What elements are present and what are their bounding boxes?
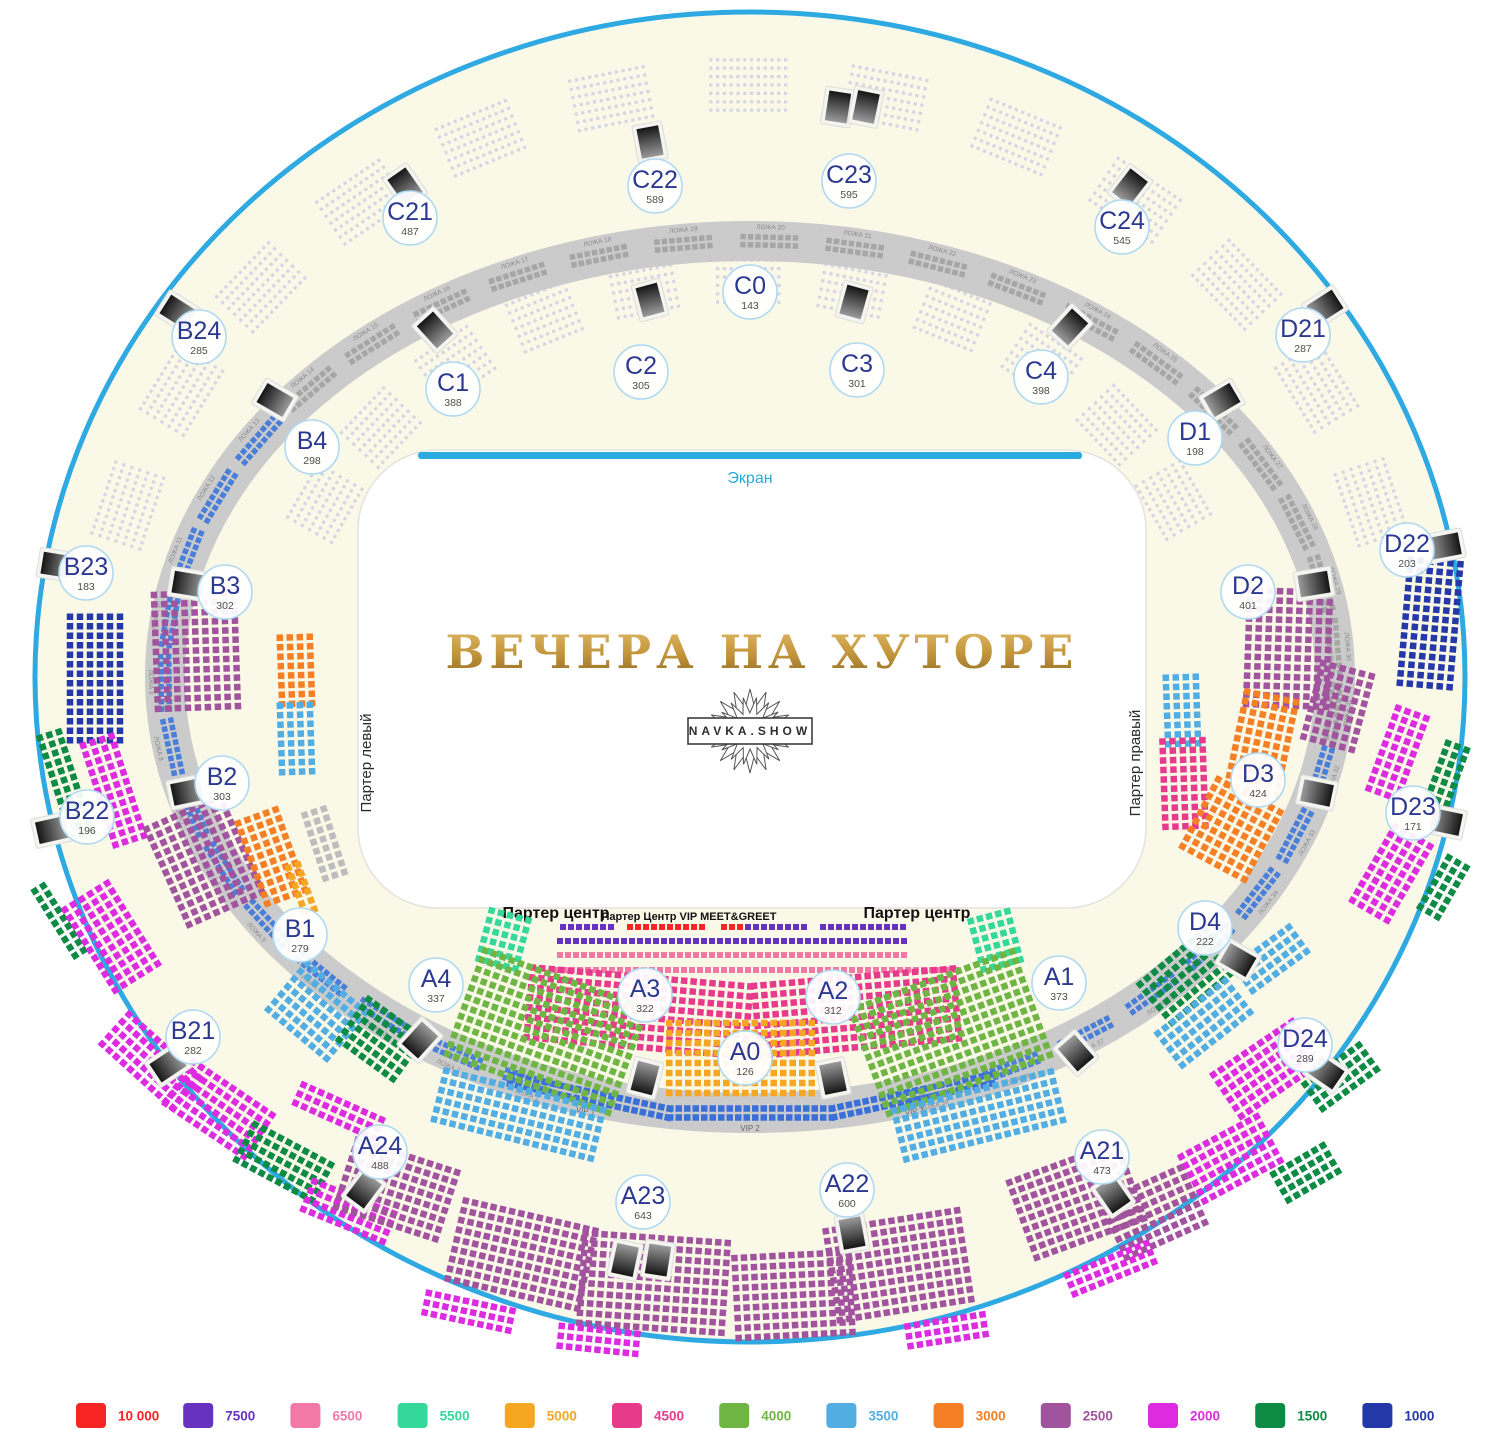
section-A23[interactable]: A23643 <box>616 1175 670 1229</box>
svg-text:D3: D3 <box>1242 760 1274 788</box>
svg-text:287: 287 <box>1294 343 1312 355</box>
legend-swatch <box>1148 1403 1178 1428</box>
svg-text:595: 595 <box>840 189 858 201</box>
legend-item-4000: 4000 <box>719 1403 791 1428</box>
legend-item-2000: 2000 <box>1148 1403 1220 1428</box>
svg-text:B23: B23 <box>64 553 108 581</box>
legend-item-1000: 1000 <box>1362 1403 1434 1428</box>
gate-icon <box>834 1212 870 1255</box>
screen-label: Экран <box>727 470 772 487</box>
section-D23[interactable]: D23171 <box>1386 786 1440 840</box>
svg-text:B1: B1 <box>285 915 316 943</box>
section-B23[interactable]: B23183 <box>59 546 113 600</box>
legend-item-10000: 10 000 <box>76 1403 159 1428</box>
seat-block <box>1271 1142 1344 1201</box>
svg-text:183: 183 <box>77 581 95 593</box>
legend-item-2500: 2500 <box>1041 1403 1113 1428</box>
section-C21[interactable]: C21487 <box>383 191 437 245</box>
section-B3[interactable]: B3302 <box>198 565 252 619</box>
arena-seating-map: ЛОЖА 1ЛОЖА 2ЛОЖА 3ЛОЖА 4ЛОЖА 5ЛОЖА 6ЛОЖА… <box>0 0 1500 1429</box>
gate-icon <box>640 1239 676 1281</box>
svg-text:398: 398 <box>1032 385 1050 397</box>
legend-item-4500: 4500 <box>612 1403 684 1428</box>
logo-text: NAVKA.SHOW <box>689 724 811 738</box>
svg-text:222: 222 <box>1196 936 1214 948</box>
svg-text:D23: D23 <box>1390 793 1436 821</box>
svg-text:B3: B3 <box>210 572 241 600</box>
svg-text:312: 312 <box>824 1005 842 1017</box>
section-A22[interactable]: A22600 <box>820 1163 874 1217</box>
svg-text:A3: A3 <box>630 975 661 1003</box>
svg-text:B22: B22 <box>65 797 109 825</box>
svg-text:196: 196 <box>78 825 96 837</box>
legend-item-3500: 3500 <box>826 1403 898 1428</box>
legend-price-label: 2500 <box>1083 1409 1113 1424</box>
section-B22[interactable]: B22196 <box>60 790 114 844</box>
svg-text:424: 424 <box>1249 788 1267 800</box>
section-B24[interactable]: B24285 <box>172 310 226 364</box>
section-A24[interactable]: A24488 <box>353 1125 407 1179</box>
price-legend: 10 0007500650055005000450040003500300025… <box>76 1403 1434 1428</box>
svg-text:B2: B2 <box>207 763 238 791</box>
svg-text:A23: A23 <box>621 1182 665 1210</box>
svg-text:A24: A24 <box>358 1132 403 1160</box>
section-B4[interactable]: B4298 <box>285 420 339 474</box>
svg-text:285: 285 <box>190 345 208 357</box>
svg-text:ЛОЖА 20: ЛОЖА 20 <box>756 224 785 232</box>
svg-text:388: 388 <box>444 397 462 409</box>
section-D22[interactable]: D22203 <box>1380 523 1434 577</box>
show-title: ВЕЧЕРА НА ХУТОРЕ <box>446 625 1079 679</box>
svg-text:D4: D4 <box>1189 908 1221 936</box>
svg-text:322: 322 <box>636 1003 654 1015</box>
svg-text:D22: D22 <box>1384 530 1430 558</box>
legend-swatch <box>76 1403 106 1428</box>
arena-svg: ЛОЖА 1ЛОЖА 2ЛОЖА 3ЛОЖА 4ЛОЖА 5ЛОЖА 6ЛОЖА… <box>0 0 1500 1429</box>
section-C2[interactable]: C2305 <box>614 345 668 399</box>
svg-text:C21: C21 <box>387 198 433 226</box>
legend-swatch <box>290 1403 320 1428</box>
svg-text:A1: A1 <box>1044 963 1075 991</box>
section-C3[interactable]: C3301 <box>830 343 884 397</box>
legend-price-label: 4500 <box>654 1409 684 1424</box>
svg-text:279: 279 <box>291 943 309 955</box>
gate-icon <box>1293 566 1335 602</box>
legend-price-label: 5000 <box>547 1409 577 1424</box>
legend-item-3000: 3000 <box>934 1403 1006 1428</box>
svg-text:337: 337 <box>427 993 445 1005</box>
legend-price-label: 4000 <box>761 1409 791 1424</box>
svg-text:487: 487 <box>401 226 419 238</box>
section-B1[interactable]: B1279 <box>273 908 327 962</box>
svg-text:A4: A4 <box>421 965 452 993</box>
svg-text:C24: C24 <box>1099 207 1145 235</box>
floor-center-right-label: Партер центр <box>864 905 971 922</box>
legend-price-label: 3500 <box>868 1409 898 1424</box>
ice-field <box>358 450 1146 908</box>
legend-swatch <box>934 1403 964 1428</box>
section-B21[interactable]: B21282 <box>166 1010 220 1064</box>
legend-price-label: 1500 <box>1297 1409 1327 1424</box>
section-D1[interactable]: D1198 <box>1168 411 1222 465</box>
svg-text:301: 301 <box>848 378 866 390</box>
legend-swatch <box>398 1403 428 1428</box>
svg-text:126: 126 <box>736 1066 754 1078</box>
svg-text:282: 282 <box>184 1045 202 1057</box>
screen-bar <box>418 452 1082 459</box>
legend-item-1500: 1500 <box>1255 1403 1327 1428</box>
svg-text:D1: D1 <box>1179 418 1211 446</box>
legend-price-label: 6500 <box>332 1409 362 1424</box>
svg-text:B4: B4 <box>297 427 328 455</box>
svg-text:600: 600 <box>838 1198 856 1210</box>
section-C1[interactable]: C1388 <box>426 362 480 416</box>
svg-text:A2: A2 <box>818 977 849 1005</box>
svg-text:D21: D21 <box>1280 315 1326 343</box>
legend-swatch <box>1041 1403 1071 1428</box>
section-D3[interactable]: D3424 <box>1231 753 1285 807</box>
svg-text:D24: D24 <box>1282 1025 1328 1053</box>
svg-text:545: 545 <box>1113 235 1131 247</box>
gate-icon <box>632 121 668 164</box>
section-B2[interactable]: B2303 <box>195 756 249 810</box>
legend-price-label: 10 000 <box>118 1409 159 1424</box>
section-A21[interactable]: A21473 <box>1075 1130 1129 1184</box>
svg-text:A0: A0 <box>730 1038 761 1066</box>
section-C23[interactable]: C23595 <box>822 154 876 208</box>
svg-text:401: 401 <box>1239 600 1257 612</box>
svg-text:VIP 2: VIP 2 <box>740 1124 760 1133</box>
legend-swatch <box>505 1403 535 1428</box>
svg-text:A22: A22 <box>825 1170 869 1198</box>
section-D21[interactable]: D21287 <box>1276 308 1330 362</box>
svg-text:373: 373 <box>1050 991 1068 1003</box>
legend-price-label: 5500 <box>440 1409 470 1424</box>
svg-text:C1: C1 <box>437 369 469 397</box>
svg-text:198: 198 <box>1186 446 1204 458</box>
floor-vip-label: Партер Центр VIP MEET&GREET <box>602 911 777 923</box>
svg-text:303: 303 <box>213 791 231 803</box>
svg-text:289: 289 <box>1296 1053 1314 1065</box>
svg-text:473: 473 <box>1093 1165 1111 1177</box>
section-C22[interactable]: C22589 <box>628 159 682 213</box>
legend-swatch <box>612 1403 642 1428</box>
legend-price-label: 2000 <box>1190 1409 1220 1424</box>
svg-text:643: 643 <box>634 1210 652 1222</box>
legend-swatch <box>826 1403 856 1428</box>
svg-text:D2: D2 <box>1232 572 1264 600</box>
section-C24[interactable]: C24545 <box>1095 200 1149 254</box>
section-A2[interactable]: A2312 <box>806 970 860 1024</box>
svg-text:C22: C22 <box>632 166 678 194</box>
section-C4[interactable]: C4398 <box>1014 350 1068 404</box>
legend-item-7500: 7500 <box>183 1403 255 1428</box>
section-A3[interactable]: A3322 <box>618 968 672 1022</box>
legend-item-5000: 5000 <box>505 1403 577 1428</box>
svg-text:A21: A21 <box>1080 1137 1124 1165</box>
svg-text:298: 298 <box>303 455 321 467</box>
legend-price-label: 3000 <box>976 1409 1006 1424</box>
svg-text:B24: B24 <box>177 317 222 345</box>
svg-text:C23: C23 <box>826 161 872 189</box>
svg-text:ЛОЖА 9: ЛОЖА 9 <box>147 670 154 695</box>
legend-item-6500: 6500 <box>290 1403 362 1428</box>
floor-right-label: Партер правый <box>1127 710 1144 817</box>
svg-text:171: 171 <box>1404 821 1422 833</box>
legend-price-label: 7500 <box>225 1409 255 1424</box>
legend-item-5500: 5500 <box>398 1403 470 1428</box>
section-A4[interactable]: A4337 <box>409 958 463 1012</box>
section-D24[interactable]: D24289 <box>1278 1018 1332 1072</box>
svg-text:203: 203 <box>1398 558 1416 570</box>
section-A1[interactable]: A1373 <box>1032 956 1086 1010</box>
legend-swatch <box>1255 1403 1285 1428</box>
svg-text:B21: B21 <box>171 1017 215 1045</box>
section-D4[interactable]: D4222 <box>1178 901 1232 955</box>
svg-text:C3: C3 <box>841 350 873 378</box>
legend-price-label: 1000 <box>1404 1409 1434 1424</box>
section-D2[interactable]: D2401 <box>1221 565 1275 619</box>
svg-text:302: 302 <box>216 600 234 612</box>
svg-text:143: 143 <box>741 300 759 312</box>
legend-swatch <box>1362 1403 1392 1428</box>
svg-text:C0: C0 <box>734 272 766 300</box>
svg-text:C4: C4 <box>1025 357 1057 385</box>
svg-text:488: 488 <box>371 1160 389 1172</box>
svg-text:C2: C2 <box>625 352 657 380</box>
seat-block <box>556 1326 643 1355</box>
legend-swatch <box>719 1403 749 1428</box>
section-C0[interactable]: C0143 <box>723 265 777 319</box>
svg-text:305: 305 <box>632 380 650 392</box>
legend-swatch <box>183 1403 213 1428</box>
svg-text:589: 589 <box>646 194 664 206</box>
section-A0[interactable]: A0126 <box>718 1031 772 1085</box>
floor-left-label: Партер левый <box>358 714 375 813</box>
